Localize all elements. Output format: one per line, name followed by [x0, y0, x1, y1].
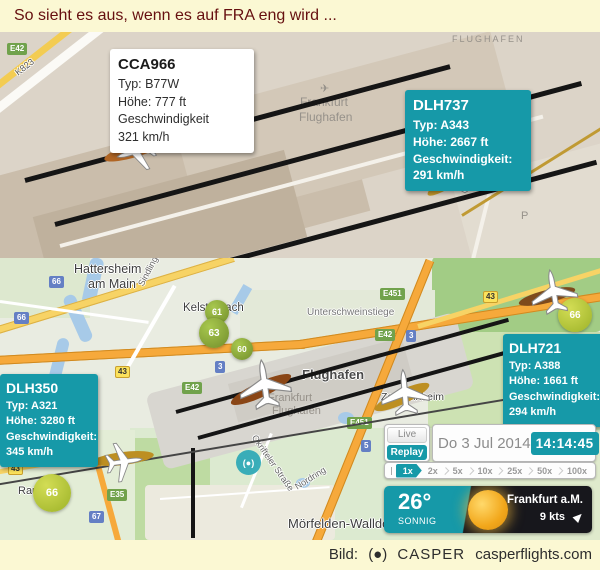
road-badge: 5 — [361, 440, 371, 452]
flight-card-dlh721[interactable]: DLH721 Typ: A388 Höhe: 1661 ft Geschwind… — [503, 334, 600, 427]
road-badge: E42 — [182, 382, 202, 394]
image-credit: Bild: (●) CASPER casperflights.com — [323, 546, 592, 563]
wind-direction-icon — [572, 511, 584, 523]
flight-card-dlh737[interactable]: DLH737 Typ: A343 Höhe: 2667 ft Geschwind… — [405, 90, 531, 191]
speed-25x[interactable]: 25x — [503, 466, 526, 476]
speed-2x[interactable]: 2x — [424, 466, 442, 476]
weather-widget: 26° SONNIG Frankfurt a.M. 9 kts — [384, 486, 592, 533]
flight-speed: 291 km/h — [413, 167, 523, 184]
road-badge: 43 — [115, 366, 130, 378]
road-badge: E451 — [380, 288, 405, 300]
header-bar: So sieht es aus, wenn es auf FRA eng wir… — [0, 0, 600, 32]
flight-speed-label: Geschwindigkeit: — [509, 390, 597, 405]
app-window: So sieht es aus, wenn es auf FRA eng wir… — [0, 0, 600, 570]
sun-icon — [468, 490, 508, 530]
temperature: 26° — [398, 489, 431, 515]
town-label: Hattersheim — [74, 262, 141, 276]
speed-bar: 1x 2x 5x 10x 25x 50x 100x — [384, 462, 596, 479]
flight-speed: 294 km/h — [509, 405, 597, 420]
road-badge: 66 — [14, 312, 29, 324]
weather-location: Frankfurt a.M. — [507, 494, 583, 506]
flight-callsign: CCA966 — [118, 56, 246, 73]
noise-marker[interactable]: 60 — [231, 338, 253, 360]
flight-altitude: Höhe: 777 ft — [118, 94, 246, 112]
aircraft-dlh721[interactable] — [524, 264, 584, 324]
step-mark — [391, 467, 392, 475]
area-label: FLUGHAFEN — [452, 34, 525, 44]
flight-card-cca966[interactable]: CCA966 Typ: B77W Höhe: 777 ft Geschwindi… — [110, 49, 254, 153]
road-badge: E35 — [107, 489, 127, 501]
live-button[interactable]: Live — [387, 427, 427, 443]
airport-icon: ✈ — [320, 82, 329, 95]
date-display[interactable]: Do 3 Jul 2014 — [438, 435, 531, 452]
noise-marker[interactable]: 63 — [199, 318, 229, 348]
flight-type: Typ: A343 — [413, 117, 523, 134]
flight-altitude: Höhe: 2667 ft — [413, 134, 523, 151]
credit-label: Bild: — [329, 546, 358, 563]
town-label: am Main — [88, 277, 136, 291]
flight-card-dlh350[interactable]: DLH350 Typ: A321 Höhe: 3280 ft Geschwind… — [0, 374, 98, 467]
page-title: So sieht es aus, wenn es auf FRA eng wir… — [14, 7, 337, 25]
brand-name: CASPER — [397, 546, 465, 563]
casper-logo-icon: (●) — [368, 546, 387, 563]
airport-name: Flughafen — [299, 110, 352, 124]
runway-west — [191, 448, 195, 538]
district-label: Unterschweinstiege — [307, 307, 394, 318]
flight-callsign: DLH350 — [6, 380, 92, 396]
aircraft-dlh350[interactable] — [97, 437, 147, 487]
flight-altitude: Höhe: 1661 ft — [509, 374, 597, 389]
speed-100x[interactable]: 100x — [563, 466, 591, 476]
speed-5x[interactable]: 5x — [449, 466, 467, 476]
flight-speed-label: Geschwindigkeit: — [6, 430, 92, 445]
speed-1x[interactable]: 1x — [396, 464, 422, 478]
speed-50x[interactable]: 50x — [533, 466, 556, 476]
casper-map-logo: (●) — [236, 450, 261, 475]
footer-bar: Bild: (●) CASPER casperflights.com — [0, 540, 600, 570]
flight-callsign: DLH737 — [413, 97, 523, 114]
wind-speed: 9 kts — [540, 511, 565, 523]
road-badge: 66 — [49, 276, 64, 288]
mode-switch: Live Replay — [384, 424, 430, 462]
aircraft-on-runway[interactable] — [232, 354, 298, 420]
road-badge: E42 — [375, 329, 395, 341]
time-display: 14:14:45 — [531, 432, 599, 455]
flight-speed-label: Geschwindigkeit: — [413, 151, 523, 168]
flight-speed: 345 km/h — [6, 445, 92, 460]
flight-speed-label: Geschwindigkeit — [118, 111, 246, 129]
street — [123, 285, 176, 374]
flight-type: Typ: B77W — [118, 76, 246, 94]
road-badge: 67 — [89, 511, 104, 523]
road-badge: 3 — [406, 330, 416, 342]
flight-callsign: DLH721 — [509, 340, 597, 356]
town-label: Mörfelden-Walldorf — [288, 516, 397, 531]
road-badge: 3 — [215, 361, 225, 373]
road-badge: E42 — [7, 43, 27, 55]
road-badge: 43 — [483, 291, 498, 303]
weather-condition: SONNIG — [398, 516, 437, 526]
flight-altitude: Höhe: 3280 ft — [6, 414, 92, 429]
flight-type: Typ: A388 — [509, 359, 597, 374]
flight-speed: 321 km/h — [118, 129, 246, 147]
aircraft-on-runway[interactable] — [376, 366, 435, 425]
noise-marker[interactable]: 66 — [33, 474, 71, 512]
datetime-box[interactable]: Do 3 Jul 2014 14:14:45 — [432, 424, 596, 462]
replay-button[interactable]: Replay — [387, 445, 427, 460]
speed-10x[interactable]: 10x — [473, 466, 496, 476]
parking-label: P — [521, 210, 528, 222]
site-url: casperflights.com — [475, 546, 592, 563]
flight-type: Typ: A321 — [6, 399, 92, 414]
